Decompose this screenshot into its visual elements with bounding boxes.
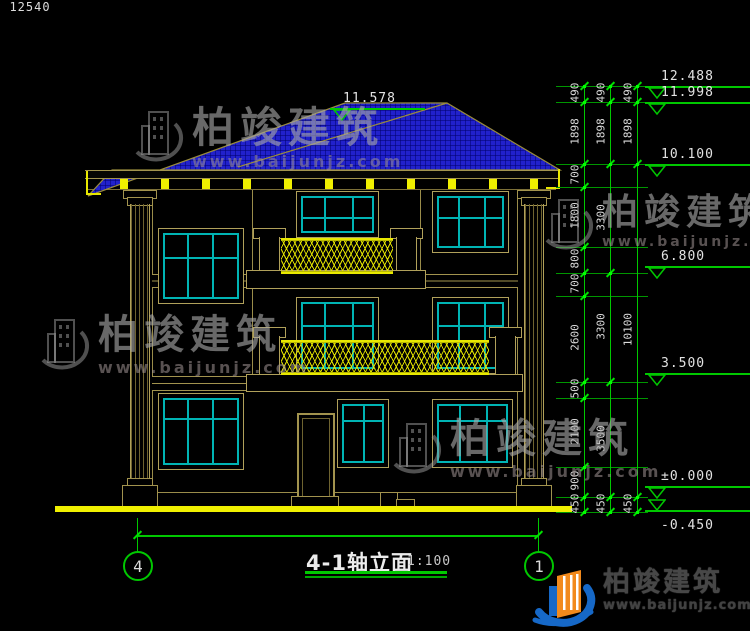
dimension-tick-dot [583, 397, 586, 400]
dimension-tick-dot [583, 511, 586, 514]
column-left-shaft [130, 204, 150, 478]
column-left-pedestal [122, 485, 158, 508]
brand-footer: 柏竣建筑 www.baijunjz.com [527, 568, 750, 630]
window-mullion-vertical [212, 400, 214, 463]
dimension-tick-dot [583, 466, 586, 469]
elevation-label: 12.488 [661, 69, 714, 84]
eave-fascia [85, 170, 558, 179]
dimension-label: 450 [622, 471, 635, 535]
dimension-tick-dot [583, 295, 586, 298]
elevation-label: ±0.000 [661, 469, 714, 484]
dimension-tick-dot [583, 163, 586, 166]
balcony3-post-right [396, 237, 417, 270]
elevation-marker-triangle [648, 487, 666, 499]
ground-line [55, 506, 572, 512]
window-mullion-vertical [187, 400, 189, 463]
window-floor1-center [337, 399, 389, 468]
title-underline-thin [305, 576, 447, 578]
watermark-text-block: 柏竣建筑www.baijunjz.com [602, 194, 750, 250]
window-floor3-balcony [296, 191, 379, 238]
dimension-label: 450 [595, 471, 608, 535]
balcony2-post-right [495, 336, 516, 374]
dimension-label: 10100 [622, 297, 635, 361]
window-mullion-vertical [324, 198, 326, 231]
watermark-logo-icon [36, 314, 90, 380]
dimension-tick-dot [609, 85, 612, 88]
window-mullion-horizontal [439, 217, 502, 219]
window-glass [301, 196, 374, 233]
eave-bracket [243, 179, 251, 189]
balcony3-railing [281, 238, 393, 274]
dimension-tick-dot [583, 101, 586, 104]
eave-bracket [120, 179, 128, 189]
dimension-label: 3300 [595, 294, 608, 358]
dimension-tick-dot [583, 496, 586, 499]
entry-door-panel [302, 418, 330, 498]
elevation-label: 3.500 [661, 356, 705, 371]
window-mullion-horizontal [439, 420, 506, 422]
elevation-marker-triangle [648, 499, 666, 511]
axis-bubble-4: 4 [123, 551, 153, 581]
brand-url: www.baijunjz.com [603, 598, 750, 613]
window-mullion-horizontal [303, 325, 372, 327]
window-mullion-horizontal [344, 420, 382, 422]
dimension-tick-dot [583, 272, 586, 275]
dimension-tick-dot [609, 496, 612, 499]
eave-bracket [161, 179, 169, 189]
dimension-tick-dot [609, 163, 612, 166]
dimension-tick-dot [583, 246, 586, 249]
elevation-label: 10.100 [661, 147, 714, 162]
overall-dimension-line [137, 535, 538, 537]
dimension-tick-dot [636, 101, 639, 104]
title-underline-thick [305, 571, 447, 574]
elevation-label: 11.998 [661, 85, 714, 100]
window-mullion-vertical [187, 235, 189, 297]
dimension-label: 3300 [595, 185, 608, 249]
balcony2-slab [246, 374, 523, 392]
dimension-label: 1898 [595, 100, 608, 164]
dimension-chain-line [610, 86, 611, 512]
dimension-tick-dot [609, 272, 612, 275]
dimension-tick-dot [636, 163, 639, 166]
window-mullion-vertical [352, 198, 354, 231]
elevation-marker-triangle [648, 165, 666, 177]
dimension-tick-dot [636, 511, 639, 514]
window-glass [163, 398, 239, 465]
eave-bracket [284, 179, 292, 189]
dimension-chain-line [584, 86, 585, 512]
dimension-chain-line [637, 86, 638, 512]
entry-door [297, 413, 335, 500]
window-glass [163, 233, 239, 299]
eave-bracket [530, 179, 538, 189]
elevation-label: -0.450 [661, 518, 714, 533]
window-mullion-horizontal [165, 257, 237, 259]
window-floor1-right [432, 399, 513, 468]
window-mullion-horizontal [303, 217, 372, 219]
window-mullion-horizontal [165, 418, 237, 420]
window-glass [437, 196, 504, 248]
window-floor3-right [432, 191, 509, 253]
watermark-brand: 柏竣建筑 [602, 194, 750, 232]
dimension-tick-dot [636, 85, 639, 88]
wall-edge-left [152, 190, 153, 492]
column-right-shaft [524, 204, 544, 478]
dimension-tick-dot [583, 85, 586, 88]
dimension-tick-dot [609, 381, 612, 384]
window-mullion-vertical [484, 198, 486, 246]
window-mullion-vertical [212, 235, 214, 297]
window-glass [437, 404, 508, 463]
eave-bracket [407, 179, 415, 189]
dimension-tick-dot [583, 381, 586, 384]
gutter-end-right [546, 169, 560, 189]
wall-edge-right [517, 190, 518, 492]
brand-name: 柏竣建筑 [603, 568, 750, 598]
window-mullion-vertical [458, 198, 460, 246]
dimension-label: 450 [569, 471, 582, 535]
elevation-marker-triangle [648, 103, 666, 115]
eave-bracket [325, 179, 333, 189]
balcony2-post-left [259, 336, 280, 374]
eave-bracket [489, 179, 497, 189]
window-mullion-vertical [486, 406, 488, 461]
elevation-label: 6.800 [661, 249, 705, 264]
column-right-pedestal [516, 485, 552, 508]
window-glass [342, 404, 384, 463]
eave-bracket [366, 179, 374, 189]
balcony3-post-left [259, 237, 280, 270]
dimension-tick-dot [609, 101, 612, 104]
brand-logo-icon [527, 568, 603, 630]
dimension-label: 3500 [595, 406, 608, 470]
cad-elevation-canvas: 4901898700180080070026005002100900450490… [0, 0, 750, 631]
eave-bracket [202, 179, 210, 189]
elevation-label: 11.578 [343, 91, 396, 106]
elevation-marker-triangle [648, 374, 666, 386]
window-stair-upper [158, 228, 244, 304]
elevation-marker-triangle [648, 267, 666, 279]
eave-bracket [448, 179, 456, 189]
gutter-end-left [86, 171, 101, 195]
balcony2-railing [281, 340, 489, 375]
dimension-tick-dot [636, 496, 639, 499]
dimension-tick-dot [609, 511, 612, 514]
elevation-marker-triangle [333, 109, 351, 121]
window-stair-lower [158, 393, 244, 470]
window-mullion-vertical [459, 406, 461, 461]
dimension-label: 1898 [622, 100, 635, 164]
dimension-tick-dot [583, 186, 586, 189]
window-mullion-vertical [363, 406, 365, 461]
wall-plinth-line [152, 492, 518, 493]
drawing-scale: 1:100 [407, 554, 451, 569]
